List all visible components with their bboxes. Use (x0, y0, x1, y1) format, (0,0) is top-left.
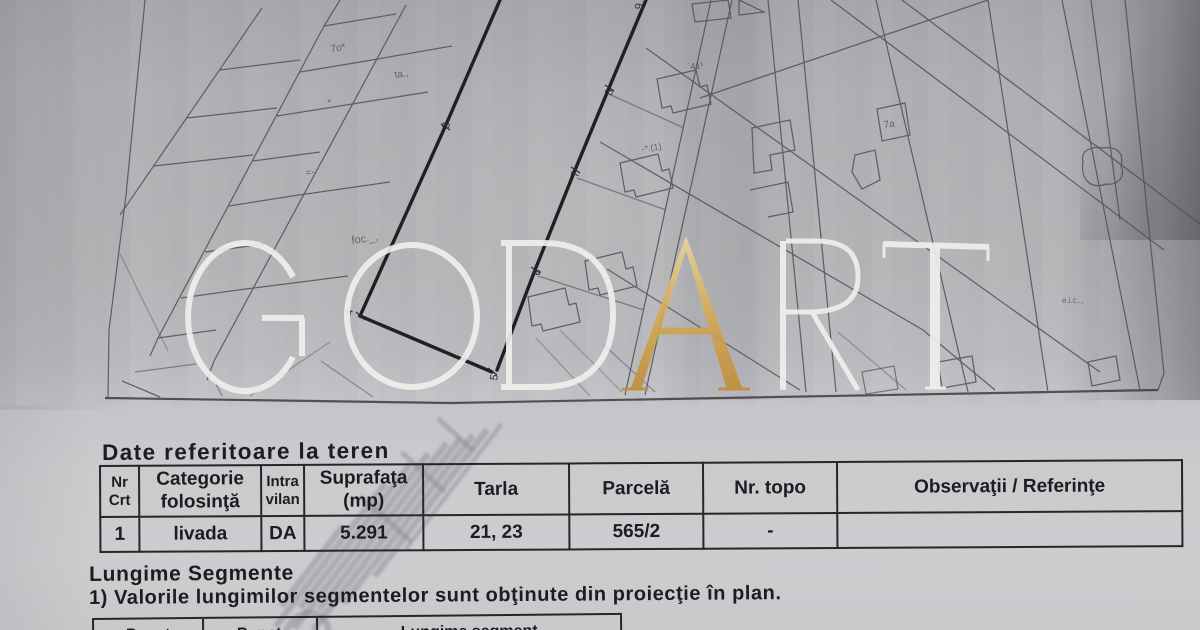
svg-text:´41¹: ´41¹ (687, 60, 704, 72)
svg-text:*: * (327, 98, 332, 109)
svg-text:8: 8 (603, 88, 616, 96)
svg-text:5: 5 (488, 373, 501, 381)
svg-text:ta.,: ta., (394, 68, 409, 81)
svg-text:=-: =- (305, 167, 316, 179)
svg-text:-*.(1): -*.(1) (641, 141, 662, 154)
svg-text:e.i.c..,: e.i.c.., (1062, 296, 1083, 305)
svg-text:7: 7 (569, 170, 582, 178)
svg-text:foc._,: foc._, (351, 231, 379, 247)
svg-text:7o*: 7o* (330, 42, 347, 55)
svg-text:7a: 7a (883, 118, 896, 131)
svg-text:6: 6 (531, 268, 544, 276)
svg-text:3: 3 (440, 121, 453, 129)
